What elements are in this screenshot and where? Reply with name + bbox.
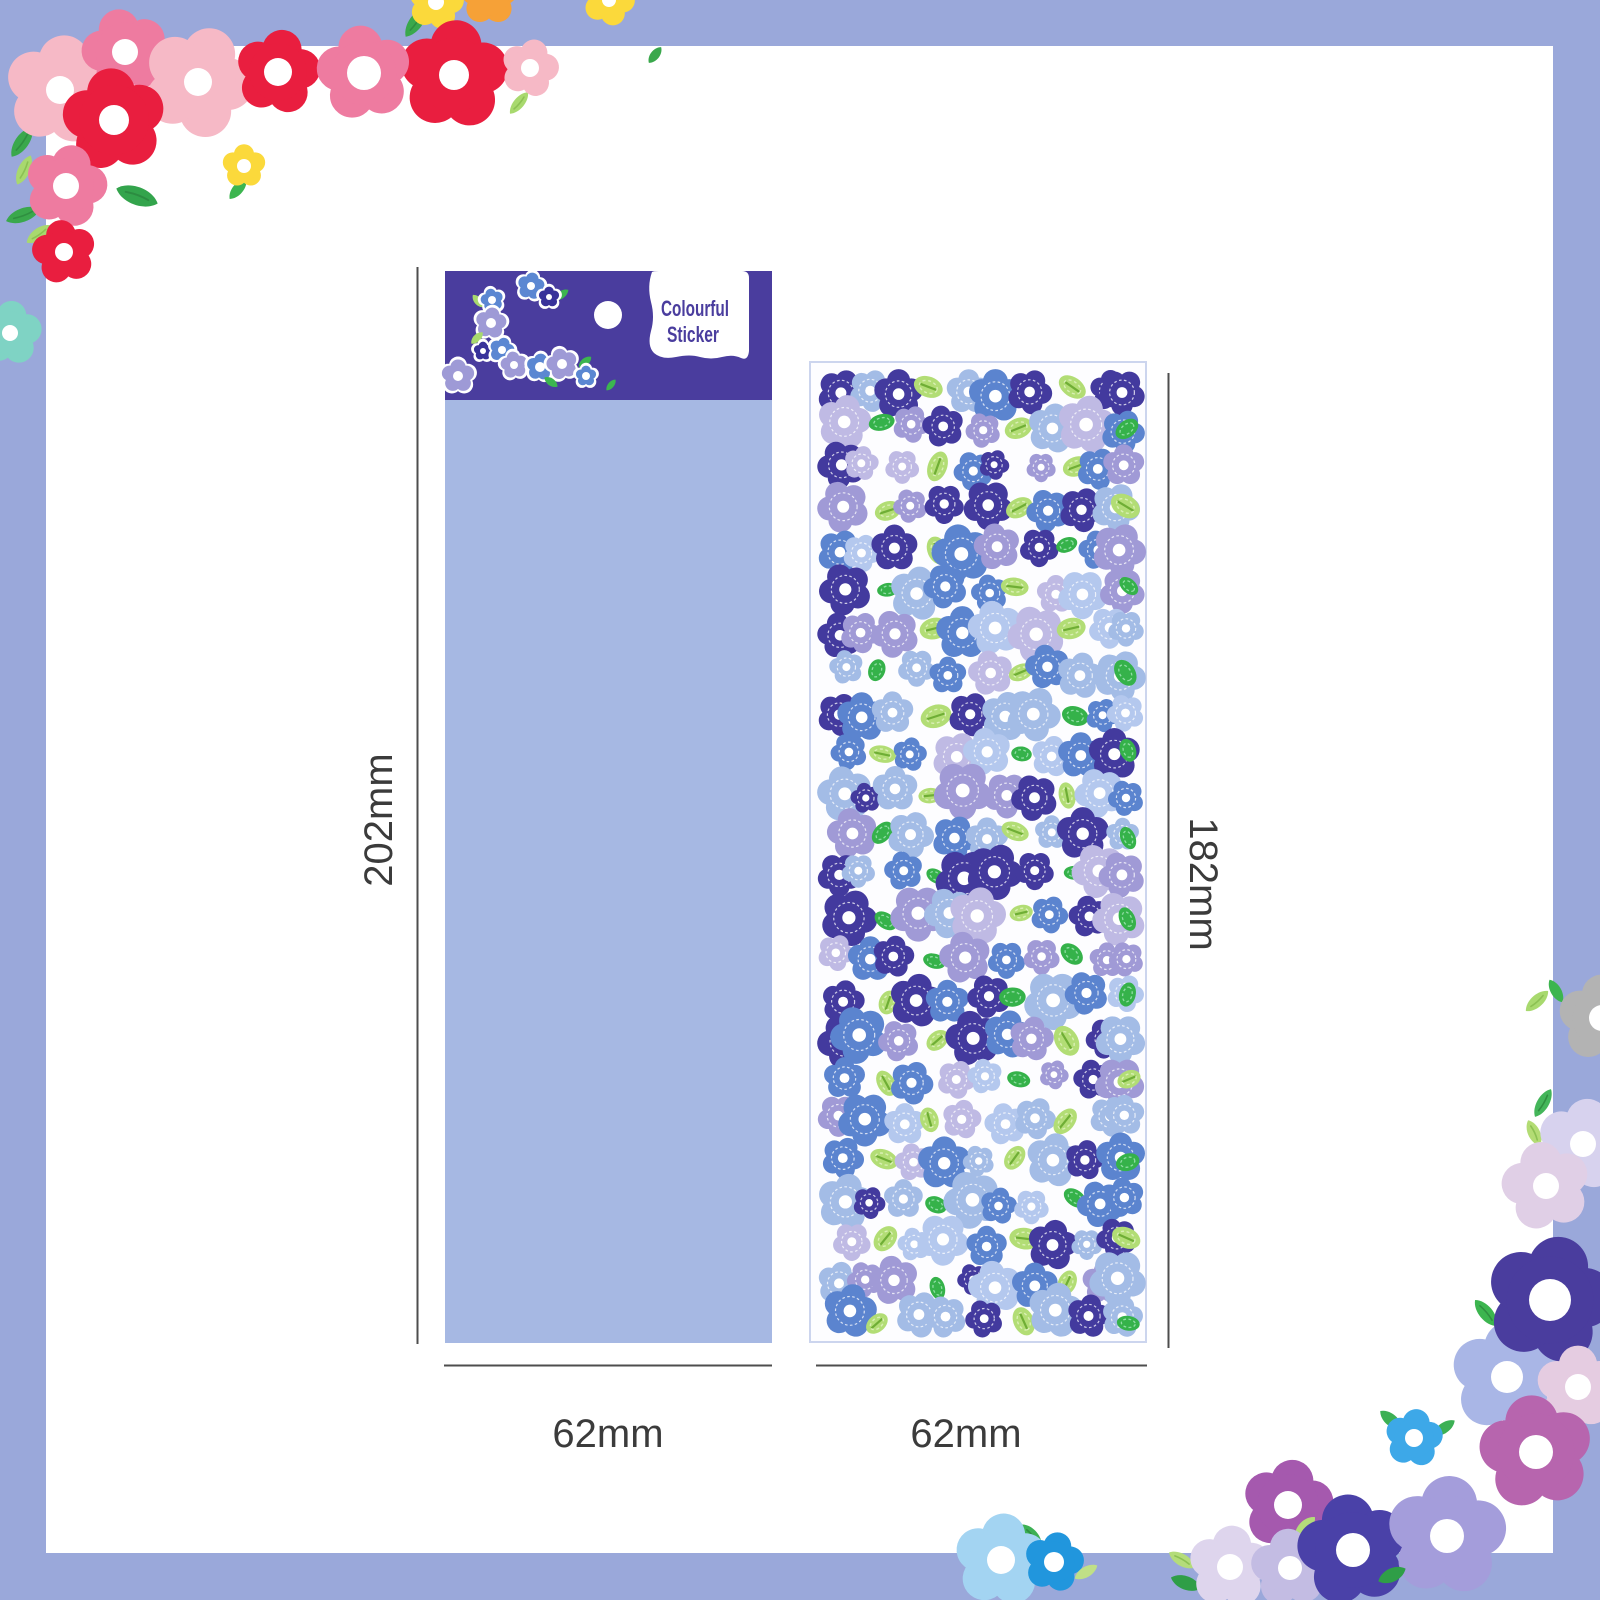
svg-text:62mm: 62mm: [910, 1412, 1021, 1456]
svg-text:Colourful: Colourful: [661, 296, 729, 321]
svg-text:202mm: 202mm: [357, 753, 401, 886]
svg-text:182mm: 182mm: [1181, 817, 1225, 950]
svg-text:62mm: 62mm: [552, 1412, 663, 1456]
svg-text:Sticker: Sticker: [667, 322, 719, 347]
